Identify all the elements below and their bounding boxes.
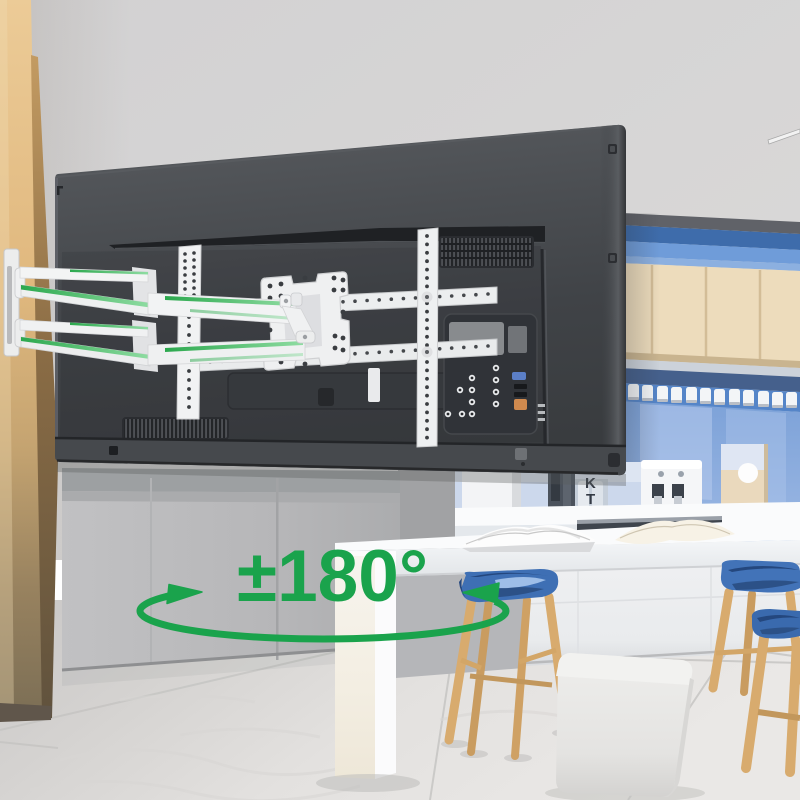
svg-text:±180°: ±180°: [237, 536, 428, 617]
svg-text:T: T: [586, 491, 595, 508]
